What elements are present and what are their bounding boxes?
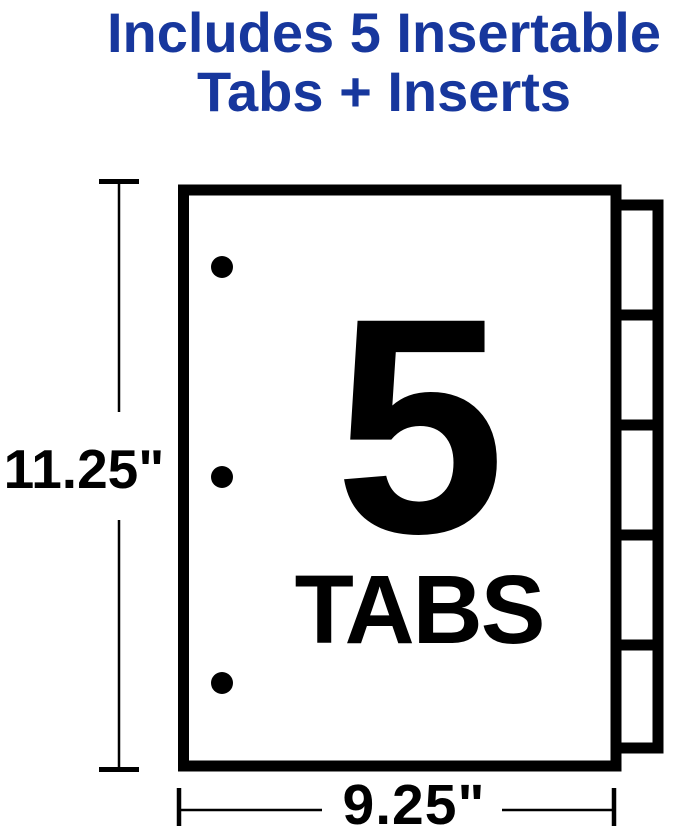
divider-tab-1 <box>616 205 658 315</box>
divider-tab-2 <box>616 315 658 425</box>
divider-diagram: 11.25" 9.25" 5 TABS <box>0 0 679 833</box>
divider-tab-4 <box>616 535 658 645</box>
punch-hole-2 <box>211 466 233 488</box>
tab-count-number: 5 <box>335 255 506 598</box>
punch-hole-3 <box>211 672 233 694</box>
product-diagram: Includes 5 Insertable Tabs + Inserts 11.… <box>0 0 679 833</box>
tab-count-label: TABS <box>295 555 544 664</box>
width-dimension-label: 9.25" <box>343 773 486 833</box>
divider-tab-5 <box>616 645 658 748</box>
punch-hole-1 <box>211 256 233 278</box>
height-dimension-label: 11.25" <box>4 438 165 500</box>
divider-tab-3 <box>616 425 658 535</box>
